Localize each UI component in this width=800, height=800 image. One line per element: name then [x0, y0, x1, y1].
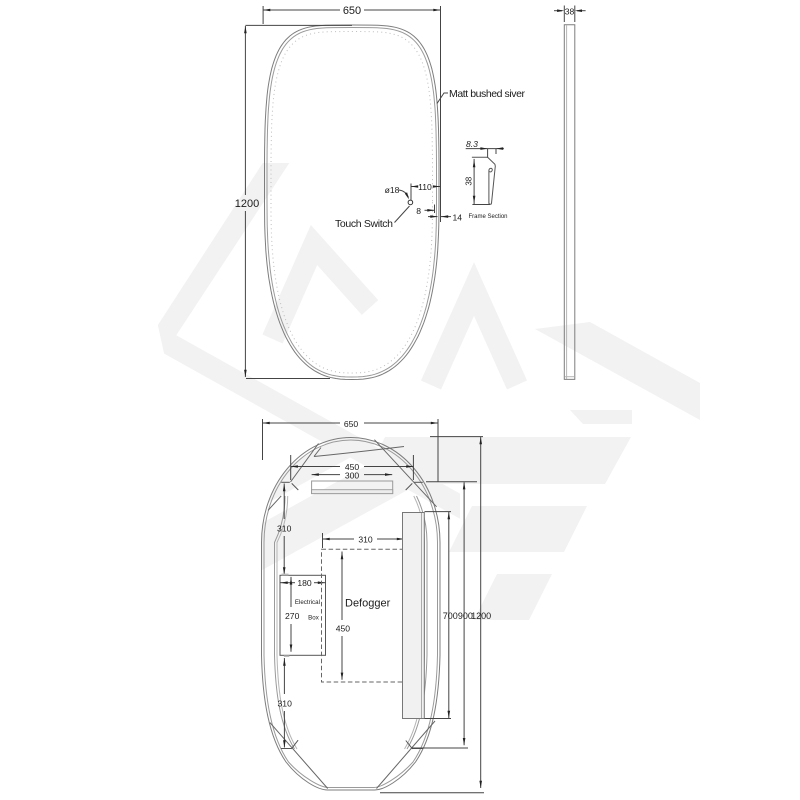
- svg-text:ø18: ø18: [385, 185, 400, 195]
- svg-text:650: 650: [344, 419, 359, 429]
- svg-text:Electrical: Electrical: [295, 599, 320, 606]
- svg-text:1200: 1200: [235, 198, 259, 210]
- svg-text:Frame Section: Frame Section: [469, 214, 508, 220]
- svg-text:8: 8: [416, 206, 421, 216]
- svg-text:Matt bushed siver: Matt bushed siver: [449, 88, 526, 100]
- svg-text:14: 14: [453, 213, 463, 223]
- svg-text:110: 110: [418, 182, 432, 192]
- svg-text:180: 180: [297, 578, 312, 588]
- svg-text:300: 300: [345, 471, 360, 481]
- svg-text:310: 310: [358, 535, 373, 545]
- svg-text:450: 450: [336, 624, 351, 634]
- svg-text:8.3: 8.3: [466, 139, 478, 149]
- svg-text:1200: 1200: [471, 611, 491, 621]
- svg-text:38: 38: [465, 176, 474, 185]
- svg-text:650: 650: [343, 5, 361, 17]
- svg-text:310: 310: [278, 699, 293, 709]
- svg-text:Defogger: Defogger: [345, 598, 391, 610]
- svg-text:270: 270: [285, 611, 300, 621]
- svg-text:38: 38: [565, 7, 575, 17]
- svg-text:310: 310: [277, 524, 292, 534]
- svg-text:700: 700: [443, 611, 458, 621]
- svg-text:Box: Box: [308, 615, 320, 622]
- svg-text:Touch Switch: Touch Switch: [335, 218, 393, 230]
